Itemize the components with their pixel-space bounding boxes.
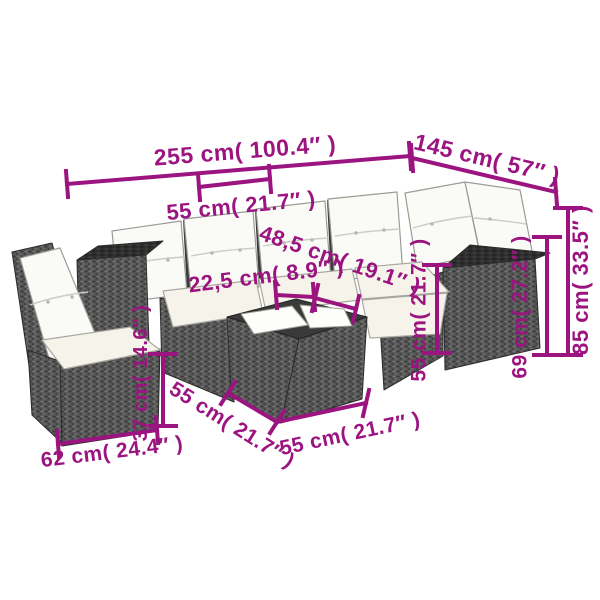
product-dimension-diagram: 255 cm( 100.4″ ) 145 cm( 57″ ) 55 cm( 21… [0, 0, 600, 600]
dim-label-seat-height-right: 55 cm( 21.7″ ) [409, 238, 430, 381]
dim-label-chair-seat-height: 37 cm( 14.6″ ) [131, 305, 151, 442]
sofa-right-armrest [443, 245, 550, 370]
dim-label-armrest-height: 69 cm( 27.2″ ) [510, 235, 531, 378]
dim-label-back-height: 85 cm( 33.5″ ) [570, 205, 592, 355]
